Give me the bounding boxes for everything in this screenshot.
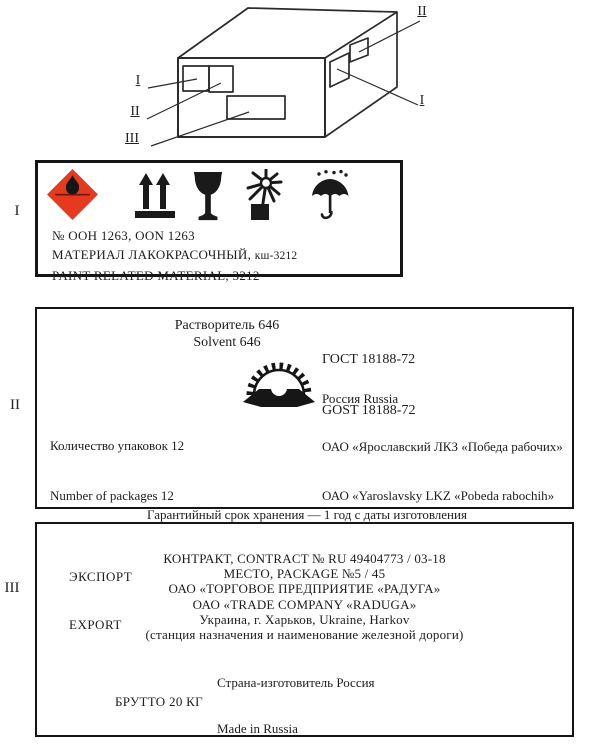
drawing-label-front-ii: II <box>121 104 149 120</box>
product-title-en: Solvent 646 <box>132 334 322 351</box>
material-name-line: МАТЕРИАЛ ЛАКОКРАСОЧНЫЙ, кш-3212 <box>52 245 297 266</box>
destination-line: Украина, г. Харьков, Ukraine, Harkov <box>37 612 572 627</box>
this-way-up-icon <box>134 172 179 219</box>
origin-column: Страна-изготовитель Россия Made in Russi… <box>217 644 551 748</box>
package-line: МЕСТО, PACKAGE №5 / 45 <box>37 566 572 581</box>
trade-company-en: ОАО «TRADE COMPANY «RADUGA» <box>37 597 572 612</box>
panel-marker-iii: III <box>0 580 26 597</box>
flammable-liquid-hazard-icon <box>46 168 99 221</box>
hazard-handling-label-panel: № ООН 1263, OON 1263 МАТЕРИАЛ ЛАКОКРАСОЧ… <box>35 160 403 277</box>
keep-away-from-sunlight-icon <box>240 169 287 221</box>
drawing-label-front-i: I <box>124 73 152 89</box>
product-title-ru: Растворитель 646 <box>132 317 322 334</box>
package-box-drawing: I II III II I <box>0 0 605 160</box>
product-title: Растворитель 646 Solvent 646 <box>132 317 322 351</box>
fragile-icon <box>191 171 225 222</box>
origin-country-en: Made in Russia <box>217 721 551 736</box>
hazard-label-text: № ООН 1263, OON 1263 МАТЕРИАЛ ЛАКОКРАСОЧ… <box>52 226 297 285</box>
brutto-ru: БРУТТО 20 КГ <box>115 693 217 711</box>
maker-ru: ОАО «Ярославский ЛКЗ «Победа рабочих» <box>322 439 563 455</box>
material-code: кш-3212 <box>255 250 298 262</box>
origin-country-ru: Страна-изготовитель Россия <box>217 675 551 690</box>
qty-ru: Количество упаковок 12 <box>50 438 250 455</box>
weights-column: БРУТТО 20 КГ BRUTTO 20 KG НЕТТО 18 КГ NE… <box>115 644 217 748</box>
shipping-label-panel: ЭКСПОРТ EXPORT КОНТРАКТ, CONTRACT № RU 4… <box>35 522 574 737</box>
trade-company-ru: ОАО «ТОРГОВОЕ ПРЕДПРИЯТИЕ «РАДУГА» <box>37 581 572 596</box>
keep-dry-icon <box>310 170 351 221</box>
contract-line: КОНТРАКТ, CONTRACT № RU 49404773 / 03-18 <box>37 551 572 566</box>
panel-marker-i: I <box>3 203 31 220</box>
drawing-label-front-iii: III <box>118 131 146 147</box>
destination-note: (станция назначения и наименование желез… <box>37 627 572 642</box>
drawing-label-side-ii: II <box>408 4 436 20</box>
country-line: Россия Russia <box>322 391 563 407</box>
box-outline-svg <box>0 0 605 160</box>
material-name-en-line: PAINT RELATED MATERIAL, 3212 <box>52 266 297 285</box>
drawing-label-side-i: I <box>408 93 436 109</box>
shelf-ru: Гарантийный срок хранения — 1 год с даты… <box>147 507 467 523</box>
un-number-line: № ООН 1263, OON 1263 <box>52 226 297 245</box>
material-name-ru: МАТЕРИАЛ ЛАКОКРАСОЧНЫЙ, <box>52 247 251 262</box>
factory-sunrise-logo-icon <box>241 355 317 410</box>
product-label-panel: Растворитель 646 Solvent 646 ГОСТ 18188-… <box>35 307 574 509</box>
weights-and-origin-block: БРУТТО 20 КГ BRUTTO 20 KG НЕТТО 18 КГ NE… <box>115 644 551 748</box>
panel-marker-ii: II <box>1 397 29 414</box>
figure-package-marking: I II III II I I II III <box>0 0 605 748</box>
consignee-block: КОНТРАКТ, CONTRACT № RU 49404773 / 03-18… <box>37 551 572 642</box>
